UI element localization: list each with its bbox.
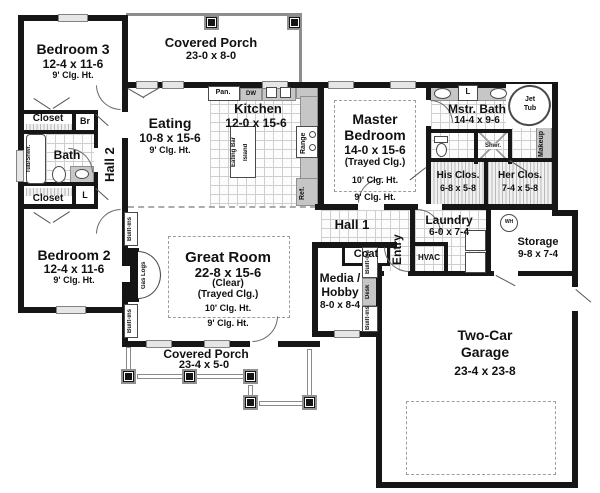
storage-name: Storage: [518, 237, 559, 249]
laundry-dims: 6-0 x 7-4: [429, 228, 469, 239]
broom-label: Br: [80, 117, 90, 126]
closet3-label: Closet: [33, 114, 64, 125]
window: [56, 306, 86, 314]
her-closet-name: Her Clos.: [498, 171, 542, 182]
tub-shower-label: Tub/Shwr.: [26, 138, 32, 180]
closet2-bifold: [33, 212, 51, 224]
porch-post: [243, 369, 258, 384]
porch-top-name: Covered Porch: [165, 36, 257, 50]
closet2-bifold: [52, 211, 70, 223]
door-gap: [94, 148, 98, 172]
bedroom2-name: Bedroom 2: [37, 248, 110, 263]
window: [136, 81, 158, 89]
bedroom2-door: [96, 209, 121, 234]
ceiling-break-line: [128, 206, 316, 208]
storage-door: [495, 275, 515, 287]
garage-dims: 23-4 x 23-8: [454, 365, 515, 378]
wall-kitchen-master: [318, 82, 324, 208]
built-ins-label: Built-ins: [127, 306, 133, 336]
refrigerator-label: Ref.: [299, 182, 306, 204]
window: [334, 330, 360, 338]
mbath-name: Mstr. Bath: [448, 103, 506, 116]
toilet: [436, 143, 447, 157]
eating-dims: 10-8 x 15-6: [139, 132, 200, 145]
fireplace-opening: [122, 266, 130, 282]
wall-hvac-top: [410, 242, 448, 246]
bedroom2-dims: 12-4 x 11-6: [44, 263, 105, 276]
greatroom-clg9: 9' Clg. Ht.: [207, 319, 248, 328]
porch-top-dims: 23-0 x 8-0: [186, 51, 236, 63]
bedroom3-clg: 9' Clg. Ht.: [52, 71, 93, 80]
garage-name2: Garage: [461, 345, 509, 360]
master-clg10: 10' Clg. Ht.: [352, 176, 398, 185]
eating-bar-label: Eating Bar: [231, 130, 237, 174]
media-name1: Media /: [320, 272, 361, 285]
wall-laundry-storage: [486, 204, 491, 275]
closet3-bifold: [33, 98, 51, 110]
porch-post: [287, 15, 302, 30]
window: [16, 150, 24, 182]
garage-door-outline: [406, 401, 556, 475]
jet-tub-label2: Tub: [524, 105, 536, 112]
eating-name: Eating: [149, 116, 192, 131]
porch-bottom-dims: 23-4 x 5-0: [179, 360, 229, 372]
greatroom-clg10: 10' Clg. Ht.: [205, 304, 251, 313]
greatroom-name: Great Room: [185, 250, 271, 266]
wall-garage-bottom: [378, 482, 578, 488]
closet2-label: Closet: [33, 194, 64, 205]
bath-name: Bath: [54, 149, 81, 162]
gas-logs-label: Gas Logs: [141, 254, 147, 296]
wall-entry-right: [410, 204, 415, 274]
wall-right-upper: [552, 82, 558, 216]
wall-media-left: [312, 242, 318, 337]
built-ins-label: Built-ins: [127, 214, 133, 244]
built-ins-label: Built-ins: [365, 308, 371, 330]
burner: [309, 144, 316, 151]
kitchen-dims: 12-0 x 15-6: [225, 117, 286, 130]
pantry-label: Pan.: [216, 89, 231, 96]
wall-his-her: [484, 158, 488, 208]
wall-closet3-br: [72, 110, 76, 134]
porch-post: [243, 395, 258, 410]
makeup-label: Makeup: [538, 128, 545, 160]
vanity-sink: [490, 88, 507, 99]
media-dims: 8-0 x 8-4: [320, 301, 360, 312]
bedroom3-name: Bedroom 3: [36, 42, 109, 57]
closet3-bifold: [52, 97, 70, 109]
his-closet-name: His Clos.: [437, 171, 480, 182]
vanity-sink: [75, 169, 89, 179]
floor-plan: Bedroom 3 12-4 x 11-6 9' Clg. Ht. Covere…: [0, 0, 600, 493]
wall-mbath-mid: [426, 129, 512, 133]
greatroom-note2: (Trayed Clg.): [198, 290, 259, 301]
jet-tub-label1: Jet: [525, 96, 535, 103]
porch-post: [302, 395, 317, 410]
entry-name: Entry: [390, 226, 404, 274]
water-heater-label: WH: [505, 220, 513, 225]
wall-closet2-linen: [72, 182, 76, 209]
window: [58, 14, 88, 22]
porch-rail: [259, 401, 305, 406]
greatroom-porch-door: [252, 316, 278, 342]
shower-label: Shwr.: [484, 143, 502, 149]
dishwasher-label: DW: [246, 91, 256, 97]
door-gap: [98, 110, 120, 114]
burner: [309, 131, 316, 138]
toilet: [52, 166, 66, 183]
bedroom3-dims: 12-4 x 11-6: [43, 58, 104, 71]
media-name2: Hobby: [321, 286, 358, 299]
hall2-name: Hall 2: [102, 140, 117, 190]
wall-right-lower: [572, 210, 578, 488]
door-gap: [358, 204, 384, 210]
hall1-name: Hall 1: [335, 218, 370, 232]
his-closet-dims: 6-8 x 5-8: [440, 184, 476, 193]
porch-rail: [126, 347, 131, 371]
porch-post: [121, 369, 136, 384]
kitchen-name: Kitchen: [234, 102, 282, 116]
master-dims: 14-0 x 15-6: [344, 144, 405, 157]
linen-hall-label: L: [82, 191, 88, 200]
her-closet-dims: 7-4 x 5-8: [502, 184, 538, 193]
laundry-name: Laundry: [425, 214, 472, 227]
window: [390, 81, 416, 89]
porch-post: [204, 15, 219, 30]
sink-basin: [266, 87, 277, 98]
master-note: (Trayed Clg.): [345, 158, 406, 169]
hvac-name: HVAC: [418, 254, 440, 262]
eating-clg: 9' Clg. Ht.: [149, 146, 190, 155]
dryer: [465, 252, 486, 273]
bedroom2-clg: 9' Clg. Ht.: [53, 276, 94, 285]
built-ins-label: Built-ins: [365, 249, 371, 276]
range-label: Range: [300, 130, 307, 156]
storage-dims: 9-8 x 7-4: [518, 250, 558, 261]
master-name1: Master: [352, 112, 397, 127]
toilet-tank: [434, 136, 448, 143]
desk-label: Desk: [365, 280, 371, 304]
bedroom3-door: [96, 85, 121, 110]
greatroom-note1: (Clear): [212, 279, 244, 290]
wall-garage-left: [376, 242, 382, 488]
wall-bedroom3-right: [122, 15, 128, 112]
window: [162, 81, 184, 89]
porch-rail: [307, 349, 312, 397]
window: [328, 81, 354, 89]
wall-closet2-bottom: [22, 204, 98, 209]
master-name2: Bedroom: [344, 128, 405, 143]
master-clg9: 9' Clg. Ht.: [354, 193, 395, 202]
linen-bath-label: L: [466, 88, 471, 96]
island-label: Island: [243, 130, 249, 174]
vanity-sink: [434, 88, 451, 99]
garage-name1: Two-Car: [458, 328, 513, 343]
sink-basin: [280, 87, 291, 98]
mbath-dims: 14-4 x 9-6: [454, 116, 500, 127]
eating-window-mark: [127, 88, 144, 99]
